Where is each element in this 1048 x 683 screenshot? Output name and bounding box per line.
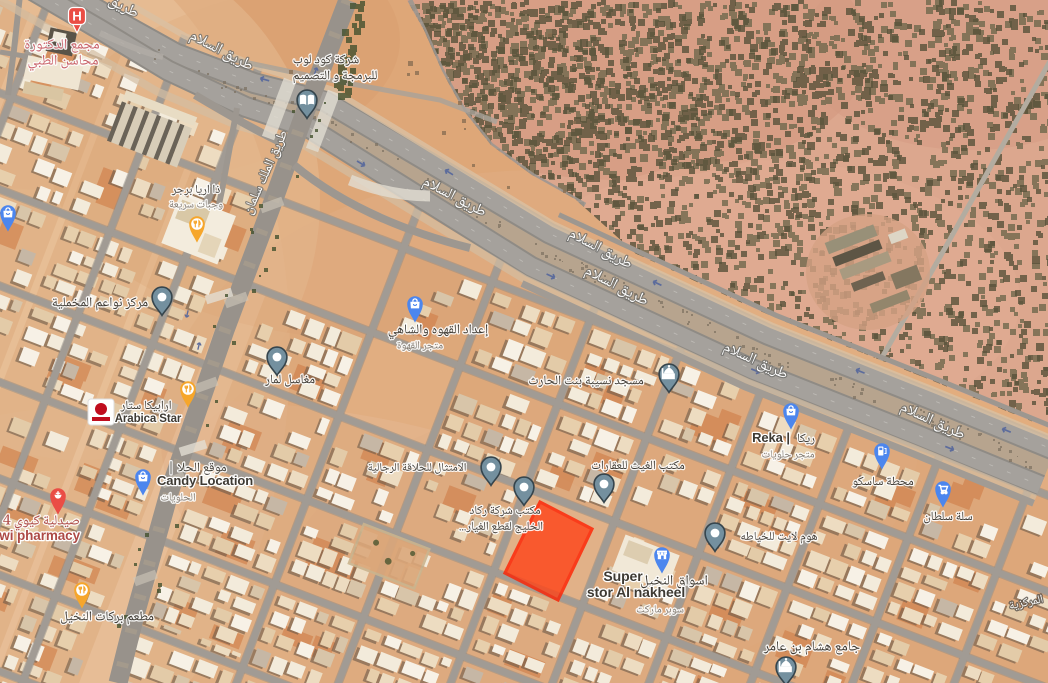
svg-text:stor Al nakheel: stor Al nakheel — [587, 584, 685, 600]
svg-text:Arabica Star: Arabica Star — [115, 413, 182, 425]
svg-text:Candy Location: Candy Location — [157, 473, 253, 488]
svg-text:Reka |: Reka | — [752, 430, 790, 445]
svg-text:iwi pharmacy: iwi pharmacy — [0, 528, 81, 543]
svg-text:Super: Super — [603, 568, 643, 584]
svg-text:H: H — [72, 9, 82, 24]
